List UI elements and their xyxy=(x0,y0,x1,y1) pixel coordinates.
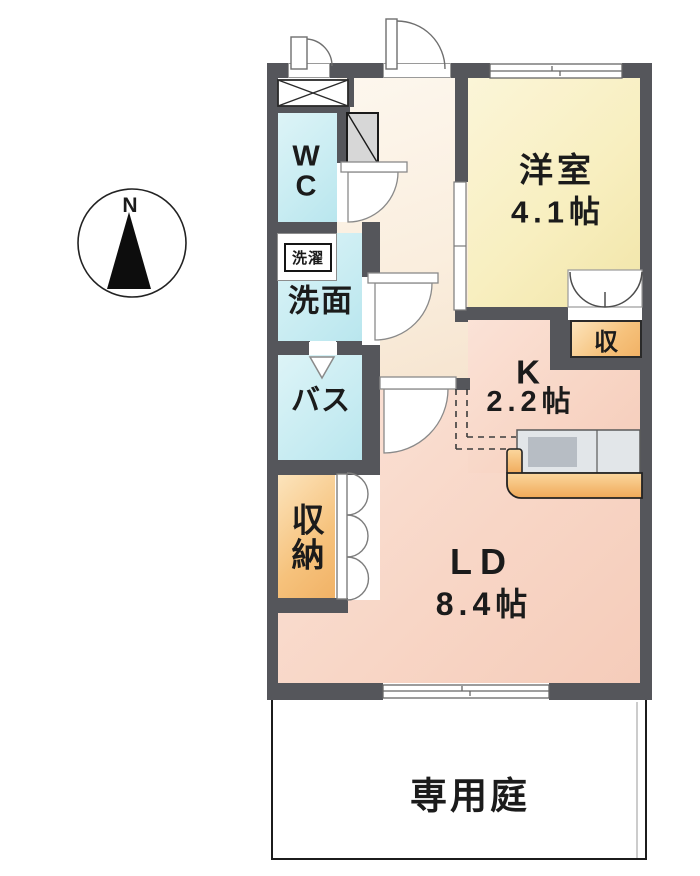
closet-double-doors xyxy=(568,270,642,307)
western-room-window xyxy=(490,64,622,78)
washroom-label: 洗面 xyxy=(288,286,354,319)
entry-void-box xyxy=(278,80,348,106)
exterior-small-door xyxy=(291,37,332,69)
compass-north-label: N xyxy=(122,195,137,217)
living-size: 8.4帖 xyxy=(436,588,533,622)
storage-label: 収 納 xyxy=(292,503,325,572)
bath-door xyxy=(310,357,334,378)
living-label: LD xyxy=(450,543,514,581)
garden-label: 専用庭 xyxy=(410,778,530,817)
wc-door xyxy=(341,162,407,222)
kitchen-counter xyxy=(507,430,642,498)
floor-plan: 収 洗濯 xyxy=(0,0,700,876)
shoe-cabinet xyxy=(347,113,378,163)
living-window xyxy=(383,685,549,698)
washroom-door xyxy=(368,273,438,340)
western-room-label: 洋室 xyxy=(519,154,595,190)
bath-label: バス xyxy=(291,386,351,416)
living-door xyxy=(380,377,456,453)
kitchen-size: 2.2帖 xyxy=(486,387,575,417)
plan-linework xyxy=(0,0,700,876)
sliding-door xyxy=(454,182,466,310)
entrance-door xyxy=(386,19,445,69)
wc-label: W C xyxy=(292,142,319,203)
western-room-size: 4.1帖 xyxy=(511,197,605,230)
accordion-door xyxy=(337,473,368,600)
